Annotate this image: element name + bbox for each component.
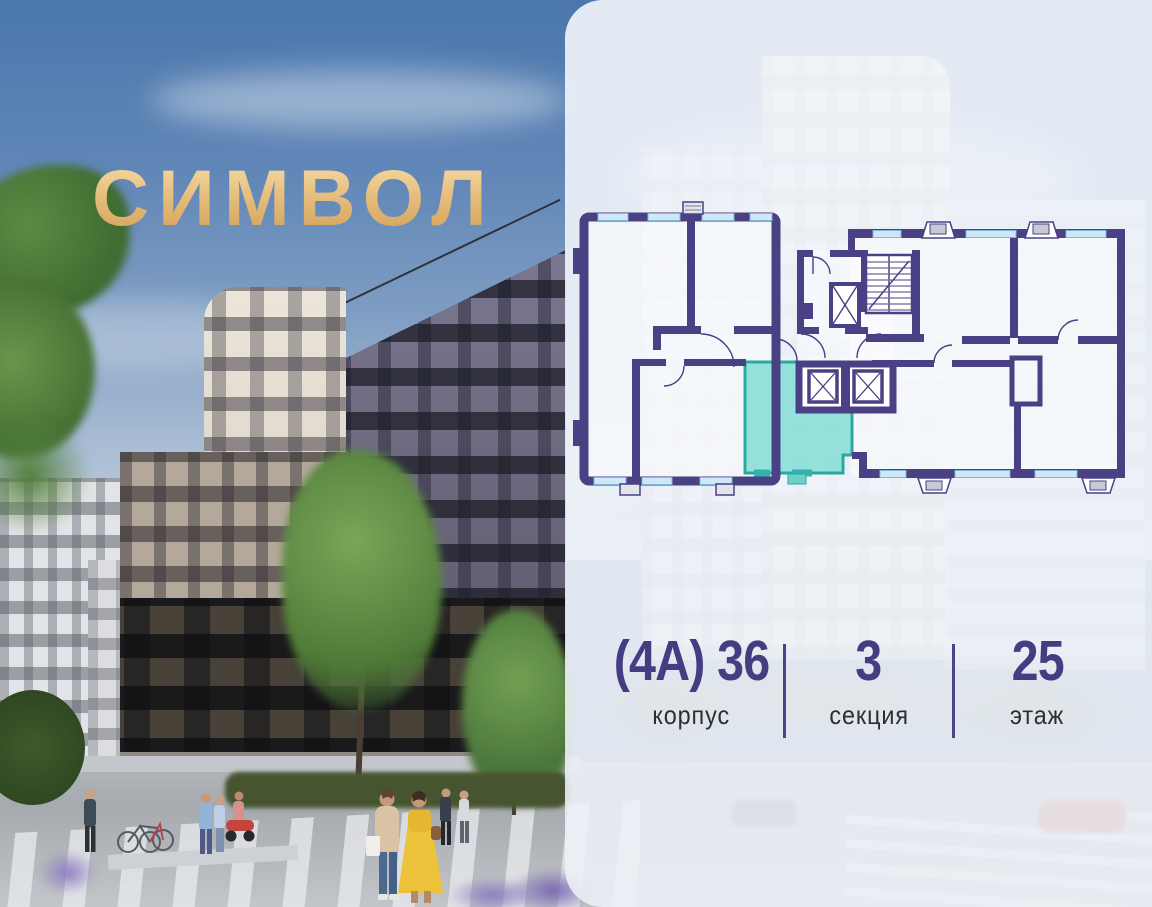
apartment-info-row: (4А) 36 корпус 3 секция 25 этаж xyxy=(600,632,1120,756)
pedestrians-walking xyxy=(440,789,469,846)
pedestrian xyxy=(84,789,96,852)
building-label: корпус xyxy=(653,700,731,731)
info-section: 3 секция xyxy=(786,632,951,756)
bicycles xyxy=(118,824,173,852)
lavender-flowers xyxy=(30,845,105,900)
building-value: (4А) 36 xyxy=(614,632,770,692)
pedestrian-woman-beige xyxy=(366,790,399,901)
scooter xyxy=(226,792,255,842)
apartment-listing-visual: СИМВОЛ xyxy=(0,0,1152,907)
brand-logo: СИМВОЛ xyxy=(92,152,496,244)
pedestrian-couple xyxy=(199,793,225,854)
section-label: секция xyxy=(829,700,909,731)
section-value: 3 xyxy=(856,632,882,692)
apartment-info-panel xyxy=(565,0,1152,907)
info-floor: 25 этаж xyxy=(955,632,1120,756)
floor-label: этаж xyxy=(1010,700,1064,731)
floor-value: 25 xyxy=(1011,632,1063,692)
pedestrian-woman-yellow xyxy=(398,791,443,903)
info-building: (4А) 36 корпус xyxy=(600,632,783,756)
